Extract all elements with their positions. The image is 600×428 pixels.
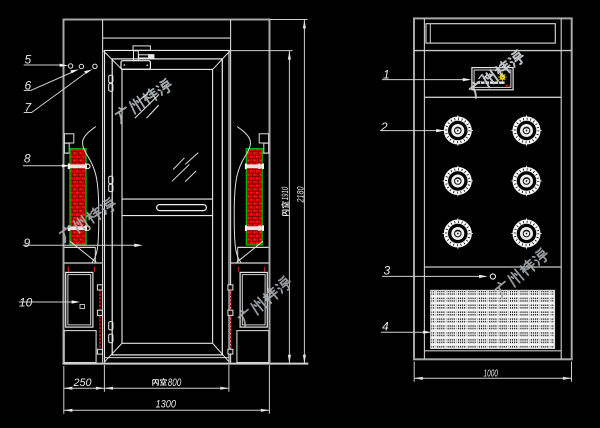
svg-text:8: 8 [24,152,31,166]
svg-text:800: 800 [168,377,182,389]
svg-text:4: 4 [382,320,389,334]
svg-text:250: 250 [73,377,93,389]
svg-text:9: 9 [24,236,31,250]
svg-text:1300: 1300 [156,399,177,411]
svg-text:2: 2 [380,120,388,134]
svg-text:3: 3 [384,263,391,277]
svg-text:2180: 2180 [296,186,307,203]
svg-text:1000: 1000 [484,368,499,379]
svg-text:1910: 1910 [280,187,290,201]
svg-text:10: 10 [19,296,33,310]
